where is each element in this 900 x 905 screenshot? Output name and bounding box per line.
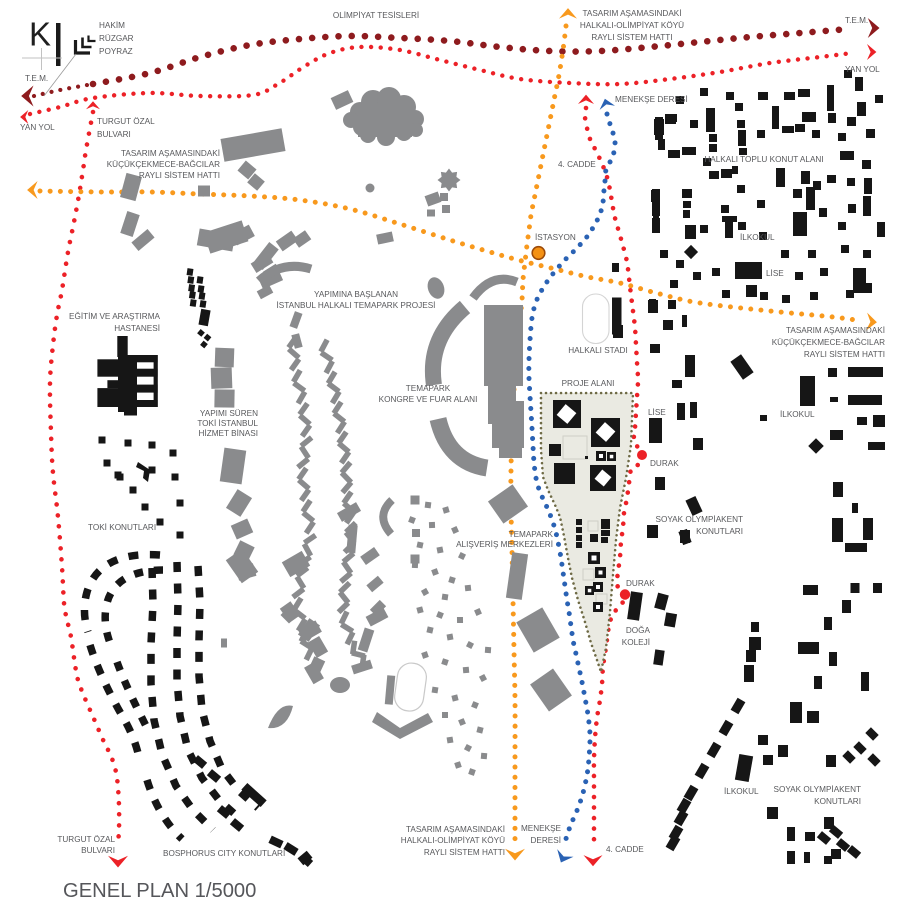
svg-text:HAKİM: HAKİM <box>99 20 125 30</box>
svg-text:PROJE ALANI: PROJE ALANI <box>562 379 615 388</box>
svg-text:KONUTLARI: KONUTLARI <box>814 797 861 806</box>
svg-text:RAYLI SİSTEM HATTI: RAYLI SİSTEM HATTI <box>591 32 672 42</box>
svg-text:HALKALI TOPLU KONUT ALANI: HALKALI TOPLU KONUT ALANI <box>704 155 823 164</box>
svg-text:İLKOKUL: İLKOKUL <box>780 409 815 419</box>
svg-text:DOĞA: DOĞA <box>626 625 651 635</box>
svg-text:TEMAPARK: TEMAPARK <box>406 384 451 393</box>
svg-text:ALIŞVERİŞ MERKEZLERİ: ALIŞVERİŞ MERKEZLERİ <box>456 539 553 549</box>
svg-text:TASARIM AŞAMASINDAKİ: TASARIM AŞAMASINDAKİ <box>406 824 505 834</box>
svg-text:KOLEJİ: KOLEJİ <box>622 637 650 647</box>
svg-text:GENEL PLAN 1/5000: GENEL PLAN 1/5000 <box>63 880 256 902</box>
svg-text:TASARIM AŞAMASINDAKİ: TASARIM AŞAMASINDAKİ <box>582 8 681 18</box>
svg-text:KONUTLARI: KONUTLARI <box>696 527 743 536</box>
svg-text:İSTANBUL HALKALI TEMAPARK PROJ: İSTANBUL HALKALI TEMAPARK PROJESİ <box>277 300 436 310</box>
svg-text:OLİMPİYAT TESİSLERİ: OLİMPİYAT TESİSLERİ <box>333 10 419 20</box>
svg-text:DURAK: DURAK <box>650 459 679 468</box>
svg-text:HASTANESİ: HASTANESİ <box>114 323 160 333</box>
svg-text:RAYLI SİSTEM HATTI: RAYLI SİSTEM HATTI <box>139 170 220 180</box>
svg-text:HALKALI-OLİMPİYAT KÖYÜ: HALKALI-OLİMPİYAT KÖYÜ <box>580 20 684 30</box>
svg-text:HİZMET BİNASI: HİZMET BİNASI <box>199 428 258 438</box>
svg-text:İSTASYON: İSTASYON <box>535 232 576 242</box>
svg-text:TOKİ İSTANBUL: TOKİ İSTANBUL <box>197 418 258 428</box>
svg-text:MENEKŞE DERESİ: MENEKŞE DERESİ <box>615 94 688 104</box>
svg-text:İLKOKUL: İLKOKUL <box>740 232 775 242</box>
svg-text:YAPIMINA BAŞLANAN: YAPIMINA BAŞLANAN <box>314 290 398 299</box>
svg-text:BULVARI: BULVARI <box>81 846 115 855</box>
svg-text:T.E.M.: T.E.M. <box>845 16 868 25</box>
svg-text:T.E.M.: T.E.M. <box>25 74 48 83</box>
svg-text:YAN YOL: YAN YOL <box>845 65 880 74</box>
svg-text:HALKALI STADI: HALKALI STADI <box>568 346 627 355</box>
svg-text:SOYAK OLYMPİAKENT: SOYAK OLYMPİAKENT <box>655 514 743 524</box>
svg-text:K: K <box>29 16 51 53</box>
svg-text:RÜZGAR: RÜZGAR <box>99 33 134 43</box>
svg-text:TASARIM AŞAMASINDAKİ: TASARIM AŞAMASINDAKİ <box>121 148 220 158</box>
svg-text:LİSE: LİSE <box>648 407 666 417</box>
svg-text:4. CADDE: 4. CADDE <box>606 845 644 854</box>
svg-text:BOSPHORUS CITY KONUTLARI: BOSPHORUS CITY KONUTLARI <box>163 849 285 858</box>
svg-text:TURGUT ÖZAL: TURGUT ÖZAL <box>97 116 155 126</box>
svg-text:HALKALI-OLİMPİYAT KÖYÜ: HALKALI-OLİMPİYAT KÖYÜ <box>401 835 505 845</box>
svg-text:POYRAZ: POYRAZ <box>99 47 133 56</box>
svg-text:BULVARI: BULVARI <box>97 130 131 139</box>
svg-text:TOKİ KONUTLARI: TOKİ KONUTLARI <box>88 522 156 532</box>
svg-text:4. CADDE: 4. CADDE <box>558 160 596 169</box>
svg-text:DERESİ: DERESİ <box>531 835 561 845</box>
svg-text:KÜÇÜKÇEKMECE-BAĞCILAR: KÜÇÜKÇEKMECE-BAĞCILAR <box>772 337 885 347</box>
svg-text:DURAK: DURAK <box>626 579 655 588</box>
svg-text:SOYAK OLYMPİAKENT: SOYAK OLYMPİAKENT <box>773 784 861 794</box>
svg-text:TURGUT ÖZAL: TURGUT ÖZAL <box>57 834 115 844</box>
svg-text:İLKOKUL: İLKOKUL <box>724 786 759 796</box>
svg-text:YAN YOL: YAN YOL <box>20 123 55 132</box>
svg-text:KONGRE VE FUAR ALANI: KONGRE VE FUAR ALANI <box>379 395 478 404</box>
svg-text:KÜÇÜKÇEKMECE-BAĞCILAR: KÜÇÜKÇEKMECE-BAĞCILAR <box>107 159 220 169</box>
svg-text:TEMAPARK: TEMAPARK <box>509 530 554 539</box>
svg-text:LİSE: LİSE <box>766 268 784 278</box>
svg-text:RAYLI SİSTEM HATTI: RAYLI SİSTEM HATTI <box>424 847 505 857</box>
svg-text:EĞİTİM VE ARAŞTIRMA: EĞİTİM VE ARAŞTIRMA <box>69 311 161 321</box>
svg-text:MENEKŞE: MENEKŞE <box>521 824 562 833</box>
svg-text:TASARIM AŞAMASINDAKİ: TASARIM AŞAMASINDAKİ <box>786 325 885 335</box>
svg-text:RAYLI SİSTEM HATTI: RAYLI SİSTEM HATTI <box>804 349 885 359</box>
svg-text:YAPIMI SÜREN: YAPIMI SÜREN <box>200 408 258 418</box>
